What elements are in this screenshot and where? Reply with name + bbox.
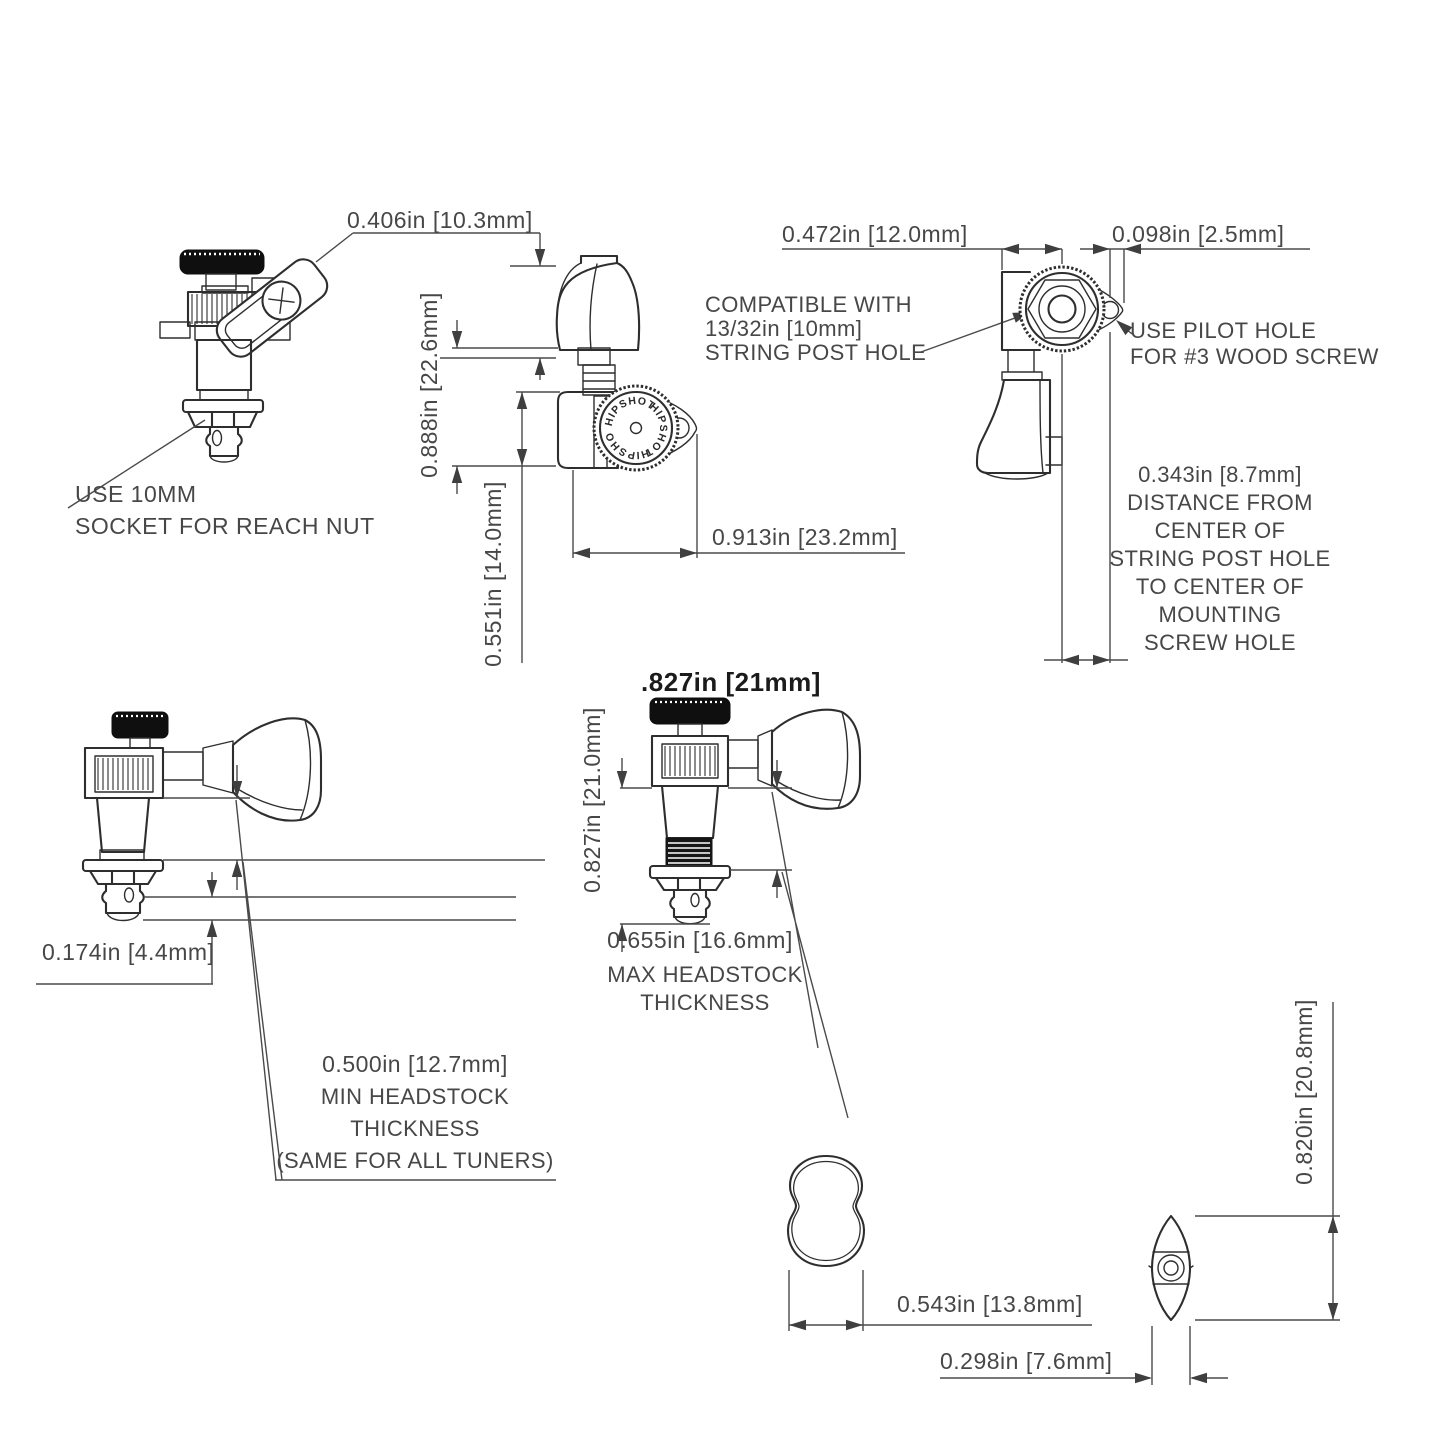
callout-pilot-line2: FOR #3 WOOD SCREW <box>1130 344 1379 369</box>
max-headstock-line2: MAX HEADSTOCK <box>607 962 803 987</box>
callout-socket-line2: SOCKET FOR REACH NUT <box>75 513 375 539</box>
min-headstock-line4: (SAME FOR ALL TUNERS) <box>276 1148 553 1173</box>
gear-housing <box>1026 273 1098 345</box>
dim-plate-width-label: 0.406in [10.3mm] <box>347 207 533 233</box>
dim-edge-to-post-label: 0.472in [12.0mm] <box>782 221 968 247</box>
screw-offset-line1: 0.343in [8.7mm] <box>1138 462 1302 487</box>
tuner-dimension-drawing: 0.406in [10.3mm] USE 10MM SOCKET FOR REA… <box>0 0 1445 1445</box>
thumb-knob <box>180 250 264 274</box>
min-headstock-line2: MIN HEADSTOCK <box>321 1084 509 1109</box>
dim-max-headstock-label: 0.655in [16.6mm] <box>607 927 793 953</box>
screw-offset-line4: STRING POST HOLE <box>1109 546 1330 571</box>
technical-drawing-canvas: 0.406in [10.3mm] USE 10MM SOCKET FOR REA… <box>0 0 1445 1445</box>
dim-body-length-label: 0.913in [23.2mm] <box>712 524 898 550</box>
min-headstock-line3: THICKNESS <box>350 1116 480 1141</box>
dim-knob-to-base-label: 0.888in [22.6mm] <box>416 292 442 478</box>
dim-overall-height-label: 0.827in [21.0mm] <box>579 707 605 893</box>
screw-offset-line7: SCREW HOLE <box>1144 630 1296 655</box>
screw-offset-line3: CENTER OF <box>1155 518 1286 543</box>
dim-housing-height-label: 0.551in [14.0mm] <box>480 481 506 667</box>
dim-ear-edge-label: 0.098in [2.5mm] <box>1112 221 1284 247</box>
max-headstock-line3: THICKNESS <box>640 990 770 1015</box>
callout-socket-line1: USE 10MM <box>75 481 197 507</box>
screw-offset-line2: DISTANCE FROM <box>1127 490 1313 515</box>
dim-button-width-label: 0.543in [13.8mm] <box>897 1291 1083 1317</box>
screw-offset-line5: TO CENTER OF <box>1136 574 1304 599</box>
dim-post-tip-label: 0.174in [4.4mm] <box>42 939 214 965</box>
dim-button-height-label: 0.820in [20.8mm] <box>1291 999 1317 1185</box>
dim-overall-title: .827in [21mm] <box>641 667 821 697</box>
screw-offset-line6: MOUNTING <box>1159 602 1282 627</box>
callout-compatible-line2: 13/32in [10mm] <box>705 316 862 341</box>
thumb-knob <box>112 712 168 738</box>
callout-compatible-line1: COMPATIBLE WITH <box>705 292 912 317</box>
dim-button-thickness-label: 0.298in [7.6mm] <box>940 1348 1112 1374</box>
callout-pilot-line1: USE PILOT HOLE <box>1130 318 1316 343</box>
min-headstock-line1: 0.500in [12.7mm] <box>322 1051 508 1077</box>
callout-compatible-line3: STRING POST HOLE <box>705 340 926 365</box>
